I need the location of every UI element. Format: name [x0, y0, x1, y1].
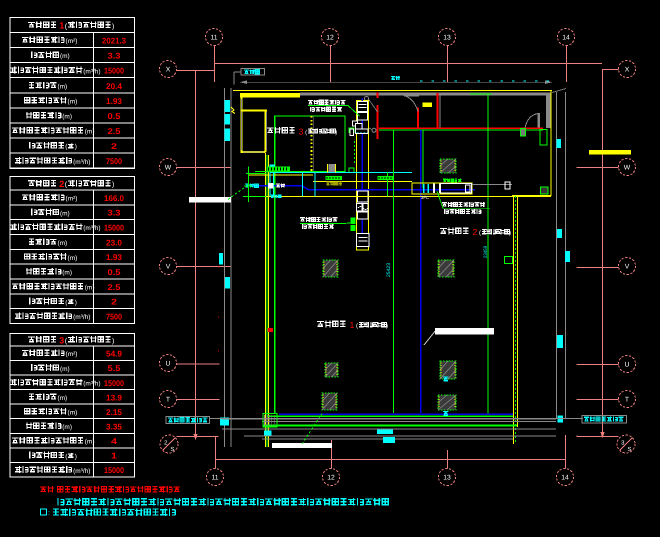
svg-text:166.0: 166.0	[104, 193, 124, 203]
svg-text:(m): (m)	[60, 366, 70, 373]
svg-text:1: 1	[111, 451, 117, 461]
svg-text:(m): (m)	[62, 424, 72, 431]
svg-text:11: 11	[210, 34, 217, 41]
svg-text:12: 12	[326, 34, 334, 41]
svg-text:1: 1	[59, 21, 64, 31]
svg-text:1: 1	[349, 320, 354, 330]
svg-text:15000: 15000	[104, 223, 124, 233]
svg-text:W: W	[165, 164, 172, 171]
svg-text:(m): (m)	[62, 270, 72, 277]
svg-text:): )	[75, 453, 77, 460]
svg-text:(m³/h): (m³/h)	[83, 225, 100, 232]
svg-text:(: (	[356, 323, 358, 330]
svg-text:T: T	[625, 396, 629, 403]
svg-text:2.5: 2.5	[108, 126, 121, 136]
svg-text:V: V	[166, 263, 171, 270]
svg-text:3.35: 3.35	[106, 422, 122, 432]
svg-text:54.9: 54.9	[106, 349, 122, 359]
svg-text:2: 2	[111, 297, 117, 307]
svg-text:(m³/h): (m³/h)	[73, 159, 90, 166]
svg-text:(m): (m)	[85, 439, 95, 446]
svg-text:2: 2	[111, 141, 117, 151]
svg-text:2021.3: 2021.3	[102, 36, 126, 46]
svg-text:(m³/h): (m³/h)	[73, 314, 90, 321]
svg-text:15000: 15000	[104, 378, 124, 388]
svg-text:12: 12	[327, 474, 335, 481]
svg-text:2.15: 2.15	[106, 407, 122, 417]
svg-text:1.93: 1.93	[106, 252, 122, 262]
svg-text:13: 13	[443, 34, 451, 41]
svg-text:W: W	[624, 164, 631, 171]
svg-text:25423: 25423	[386, 263, 392, 277]
svg-text:(m): (m)	[57, 395, 67, 402]
svg-text:S: S	[627, 446, 631, 453]
svg-text:14: 14	[561, 474, 569, 481]
svg-text:T: T	[166, 396, 170, 403]
svg-text:): )	[75, 299, 77, 306]
svg-text:(m): (m)	[60, 210, 70, 217]
svg-text:5.5: 5.5	[108, 363, 121, 373]
svg-text:S: S	[170, 446, 174, 453]
svg-text:X: X	[166, 66, 171, 73]
svg-text:3: 3	[299, 127, 304, 137]
svg-text:2.5: 2.5	[108, 282, 121, 292]
svg-text:3.3: 3.3	[108, 208, 121, 218]
svg-text:(m²): (m²)	[66, 196, 78, 203]
svg-text:14: 14	[562, 34, 570, 41]
svg-text:0.5: 0.5	[108, 111, 121, 121]
svg-text:): )	[386, 323, 388, 330]
svg-text:13: 13	[443, 474, 451, 481]
svg-text:0.5: 0.5	[108, 267, 121, 277]
svg-text:V: V	[625, 263, 630, 270]
svg-text:(: (	[479, 230, 481, 237]
svg-text:7500: 7500	[106, 156, 122, 166]
svg-text:13.9: 13.9	[106, 392, 122, 402]
svg-text:(m³/h): (m³/h)	[83, 380, 100, 387]
svg-text:(m³/h): (m³/h)	[73, 468, 90, 475]
svg-text:2: 2	[59, 179, 64, 189]
svg-text:20.4: 20.4	[106, 81, 122, 91]
svg-text:3.3: 3.3	[108, 51, 121, 61]
svg-text:23.0: 23.0	[106, 237, 122, 247]
svg-text:(m): (m)	[57, 83, 67, 90]
svg-text:): )	[112, 337, 114, 345]
svg-text:15000: 15000	[104, 66, 124, 76]
svg-text:(m): (m)	[60, 53, 70, 60]
svg-text:2: 2	[472, 227, 477, 237]
svg-text:): )	[335, 129, 337, 136]
svg-text:7500: 7500	[106, 312, 122, 322]
svg-text:(m): (m)	[68, 410, 78, 417]
svg-text:(m): (m)	[68, 255, 78, 262]
svg-text:U: U	[625, 361, 630, 368]
svg-text:): )	[509, 230, 511, 237]
svg-text:(m): (m)	[85, 129, 95, 136]
svg-text:): )	[112, 22, 114, 30]
svg-text:U: U	[166, 360, 171, 367]
svg-text:3FC: 3FC	[421, 195, 430, 200]
svg-text:(m): (m)	[62, 114, 72, 121]
svg-text:11: 11	[211, 474, 218, 481]
svg-text:(m²): (m²)	[66, 351, 78, 358]
svg-text:3: 3	[59, 335, 64, 345]
svg-text:(m): (m)	[68, 98, 78, 105]
svg-text:(: (	[305, 129, 307, 136]
svg-text:23459: 23459	[483, 246, 489, 258]
svg-text:(m²): (m²)	[66, 38, 78, 45]
svg-text:1.93: 1.93	[106, 96, 122, 106]
svg-text:(m³/h): (m³/h)	[83, 68, 100, 75]
svg-text:): )	[75, 144, 77, 151]
svg-text:4: 4	[111, 436, 117, 446]
svg-text:): )	[112, 181, 114, 189]
svg-text:15000: 15000	[104, 465, 124, 475]
svg-text:(m): (m)	[57, 240, 67, 247]
svg-text:X: X	[625, 66, 630, 73]
svg-text:(m): (m)	[85, 284, 95, 291]
svg-text::: :	[48, 510, 50, 517]
